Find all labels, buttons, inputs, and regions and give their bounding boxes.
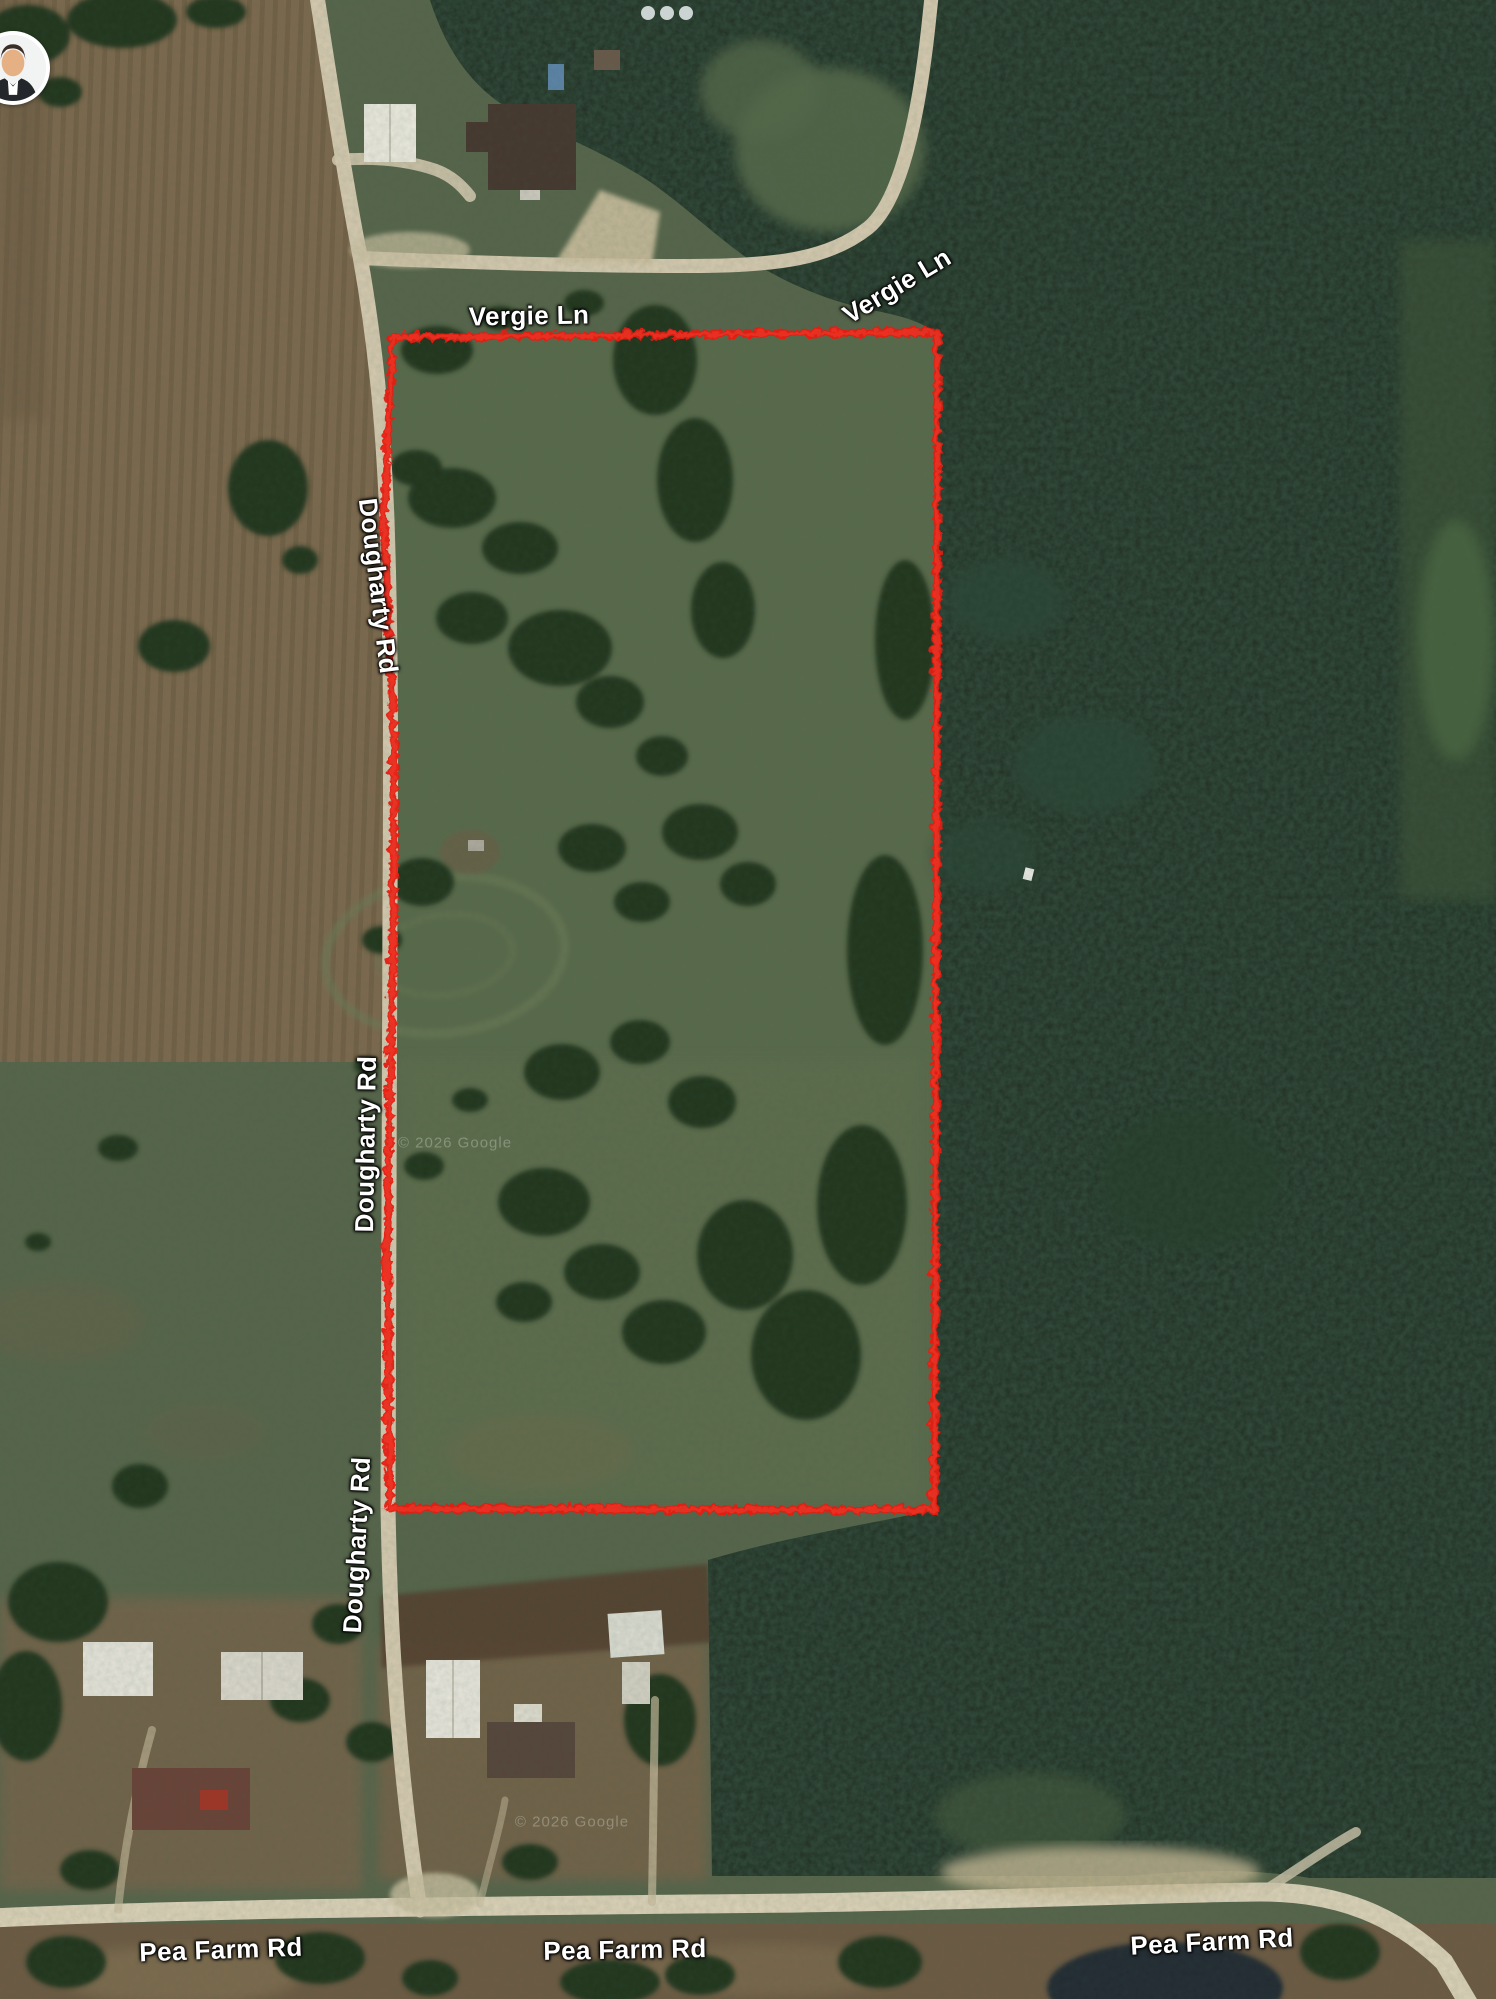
more-options-dots[interactable] xyxy=(641,6,693,20)
ellipsis-dot-icon xyxy=(679,6,693,20)
avatar-photo-icon xyxy=(0,35,46,101)
ellipsis-dot-icon xyxy=(641,6,655,20)
ellipsis-dot-icon xyxy=(660,6,674,20)
satellite-map-view[interactable]: Vergie Ln Vergie Ln Dougharty Rd Doughar… xyxy=(0,0,1496,1999)
satellite-imagery xyxy=(0,0,1496,1999)
